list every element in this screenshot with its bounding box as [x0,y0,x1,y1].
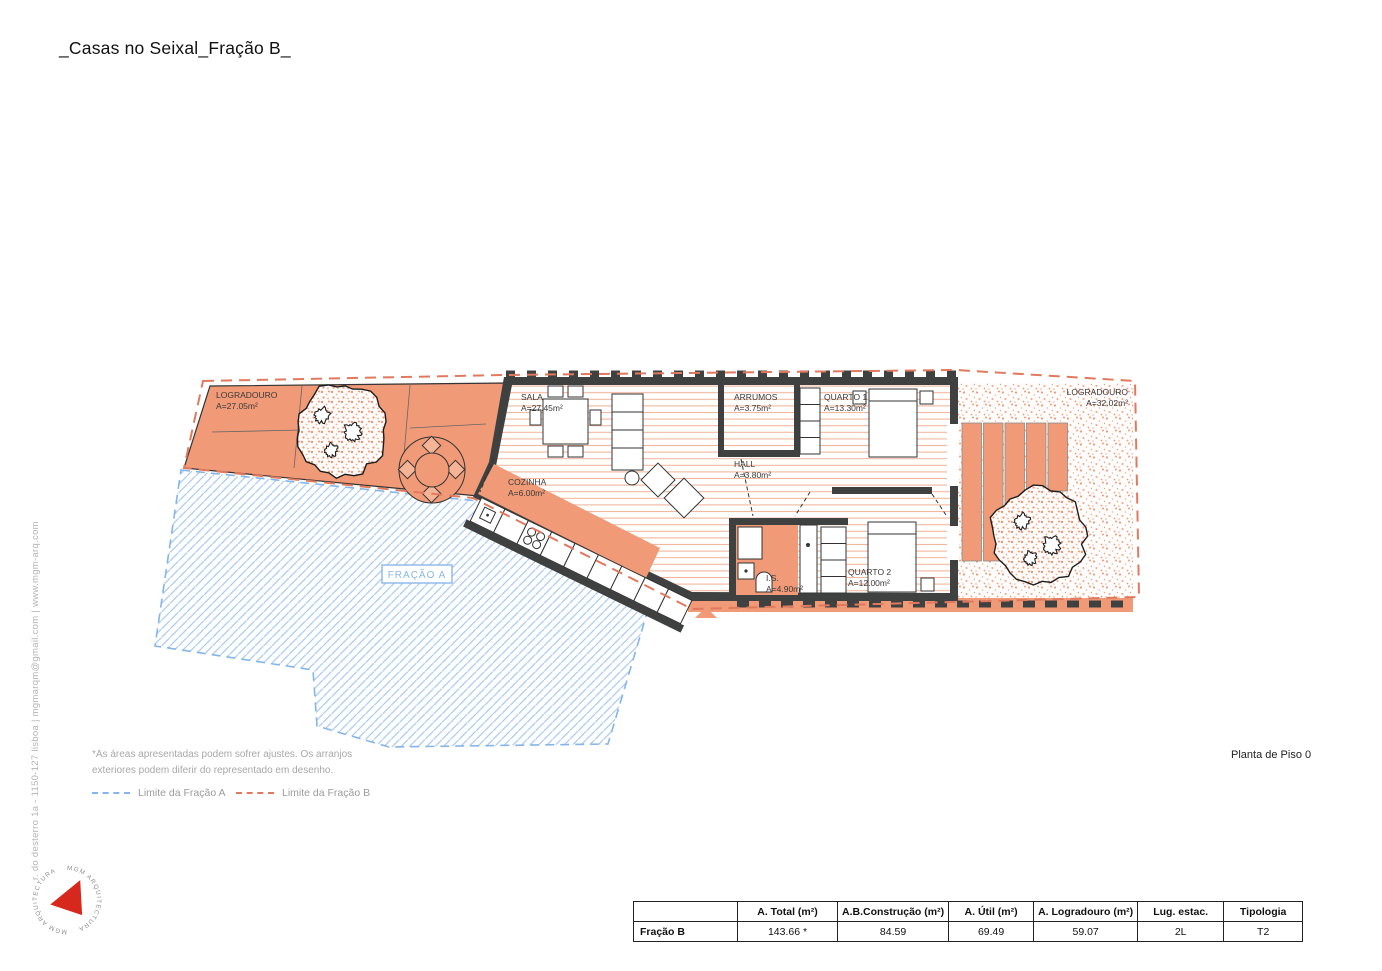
shower-tray [738,527,762,559]
drawing-title: Planta de Piso 0 [1231,749,1311,761]
legend-label-b: Limite da Fração B [282,787,370,799]
header-ab-construcao: A.B.Construção (m²) [838,902,949,922]
value-a-util: 69.49 [949,922,1034,942]
label-sala-name: SALA [521,392,543,402]
label-hall-area: A=3.80m² [734,470,771,480]
value-tipologia: T2 [1224,922,1303,942]
door-opening-logradouro [947,424,959,486]
header-tipologia: Tipologia [1224,902,1303,922]
value-a-total: 143.66 * [738,922,838,942]
header-a-total: A. Total (m²) [738,902,838,922]
label-arrumos-area: A=3.75m² [734,403,771,413]
label-quarto2-name: QUARTO 2 [848,567,891,577]
limit-a-dash-swatch [92,792,130,794]
legend-fracao-a: Limite da Fração A [92,787,226,799]
legend-label-a: Limite da Fração A [138,787,226,799]
header-blank [634,902,738,922]
logradouro-right [956,383,1133,598]
label-is-area: A=4.90m² [766,584,803,594]
areas-table-data-row: Fração B 143.66 * 84.59 69.49 59.07 2L T… [634,922,1303,942]
label-logradouro-right-area: A=32.02m² [1086,398,1128,408]
label-logradouro-right-name: LOGRADOURO [1067,387,1129,397]
areas-table: A. Total (m²) A.B.Construção (m²) A. Úti… [633,901,1303,942]
label-arrumos-name: ARRUMOS [734,392,778,402]
label-quarto1-area: A=13.30m² [824,403,866,413]
header-a-logradouro: A. Logradouro (m²) [1034,902,1138,922]
label-cozinha-area: A=6.00m² [508,488,545,498]
window-quarto2 [947,526,959,560]
bookshelf [612,394,643,470]
areas-table-header-row: A. Total (m²) A.B.Construção (m²) A. Úti… [634,902,1303,922]
label-logradouro-left-area: A=27.05m² [216,401,258,411]
legend-fracao-b: Limite da Fração B [236,787,370,799]
floor-plan-svg: LOGRADOURO A=27.05m² SALA A=27.45m² COZI… [0,0,1382,971]
limit-b-dash-swatch [236,792,274,794]
label-cozinha-name: COZINHA [508,477,547,487]
side-table [625,471,639,485]
value-lug-estac: 2L [1138,922,1224,942]
bed-quarto1 [869,389,917,457]
header-a-util: A. Útil (m²) [949,902,1034,922]
is-door-leaf [800,525,817,593]
label-logradouro-left-name: LOGRADOURO [216,390,278,400]
value-ab-construcao: 84.59 [838,922,949,942]
label-is-name: I.S. [766,573,779,583]
header-lug-estac: Lug. estac. [1138,902,1224,922]
row-label-fracao-b: Fração B [634,922,738,942]
note-line-2: exteriores podem diferir do representado… [92,763,352,779]
fracao-a-tag: FRAÇÃO A [382,565,452,583]
wardrobe-quarto2 [821,527,846,593]
drawing-sheet: _Casas no Seixal_Fração B_ r. do desterr… [0,0,1382,971]
fracao-a-tag-text: FRAÇÃO A [388,568,447,581]
value-a-logradouro: 59.07 [1034,922,1138,942]
label-sala-area: A=27.45m² [521,403,563,413]
note-line-1: *As áreas apresentadas podem sofrer ajus… [92,747,352,763]
area-notes: *As áreas apresentadas podem sofrer ajus… [92,747,352,779]
label-quarto2-area: A=12.00m² [848,578,890,588]
label-quarto1-name: QUARTO 1 [824,392,867,402]
label-hall-name: HALL [734,459,756,469]
